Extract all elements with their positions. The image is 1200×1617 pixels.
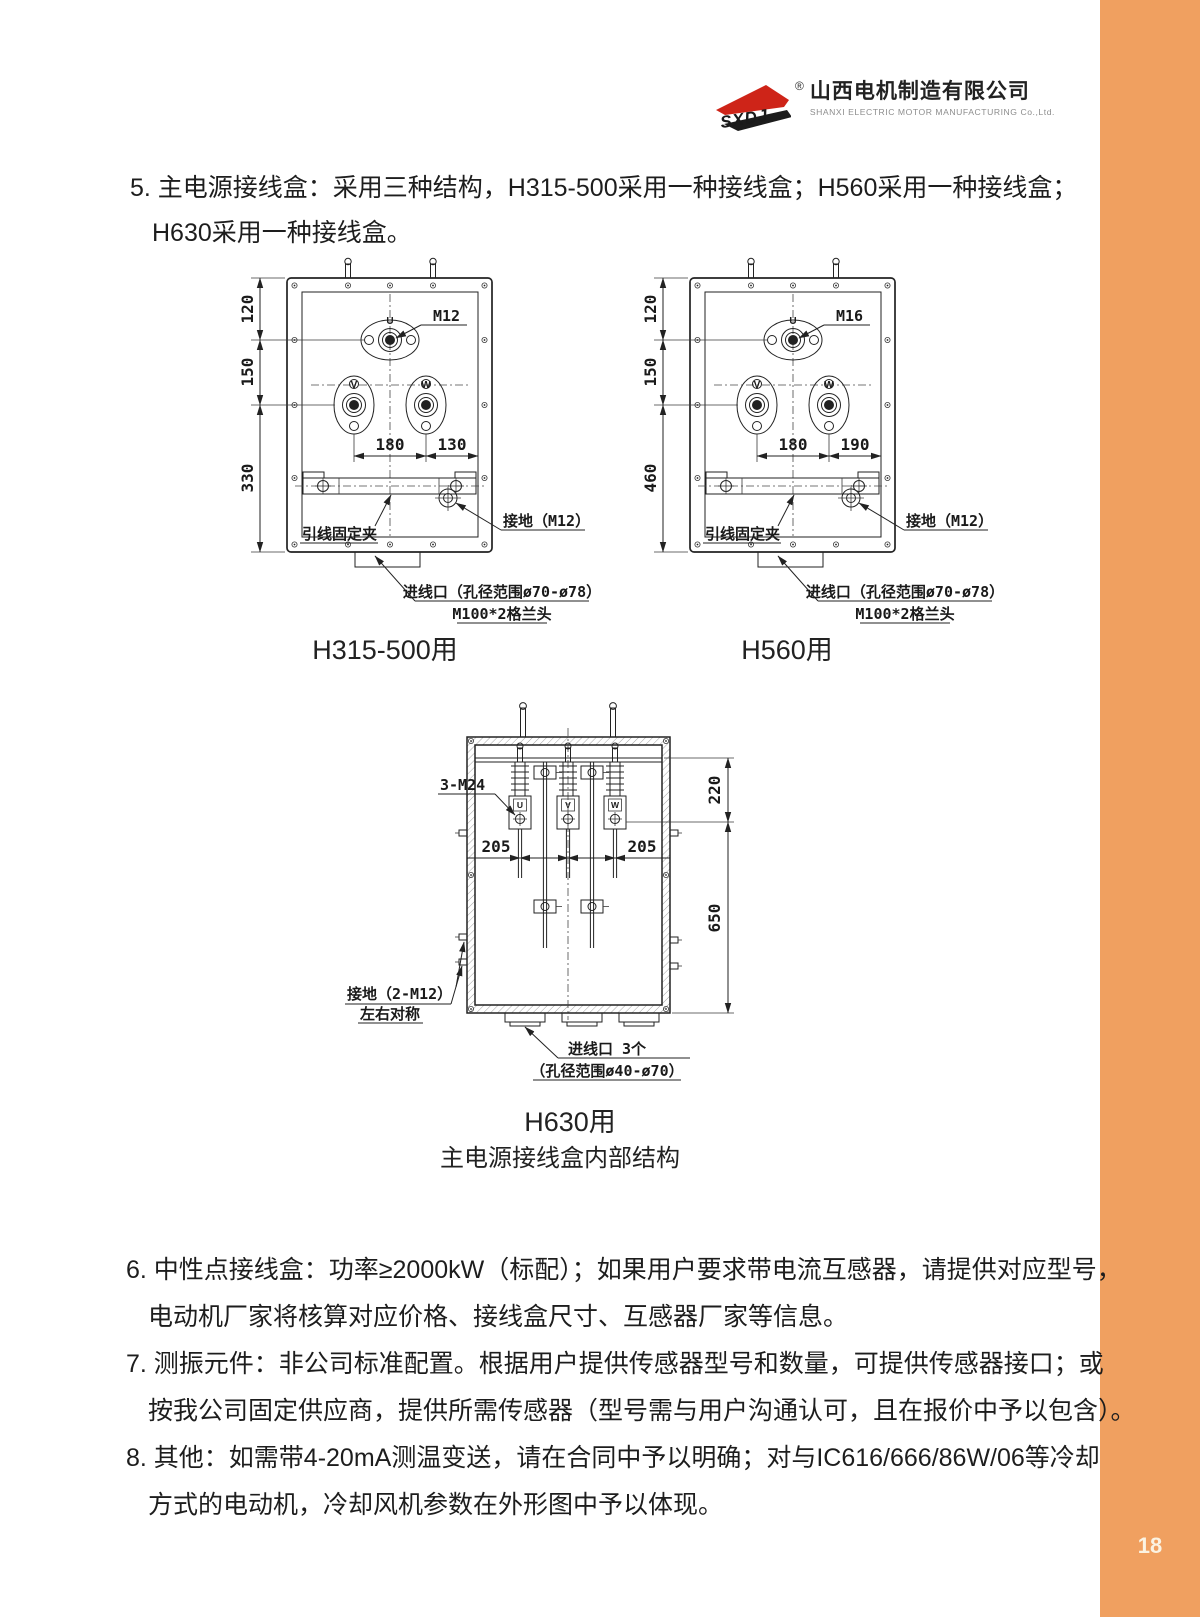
cable-entry-label: 进线口（孔径范围ø70-ø78） xyxy=(403,583,601,601)
caption-h560: H560用 xyxy=(687,628,887,667)
terminal-w-label: W xyxy=(824,380,834,391)
sxdj-logo-icon: SXDJ xyxy=(713,80,791,132)
dim-330: 330 xyxy=(238,464,257,493)
dim-120: 120 xyxy=(238,295,257,324)
note-6-line2: 电动机厂家将核算对应价格、接线盒尺寸、互感器厂家等信息。 xyxy=(148,1297,848,1333)
dim-180: 180 xyxy=(779,435,808,454)
lead-clamp-label: 引线固定夹 xyxy=(302,525,377,543)
terminal-v-label: V xyxy=(754,380,761,391)
terminal-u-label: U xyxy=(789,316,796,327)
bolt-size-label: M16 xyxy=(836,307,863,325)
diagram-h315-500: U V W M12 120 150 330 180 130 引线固定夹 接地（M… xyxy=(238,258,601,623)
junction-box-diagrams-h315-h560: U V W M12 120 150 330 180 130 引线固定夹 接地（M… xyxy=(225,250,1015,628)
cable-entry-label: 进线口（孔径范围ø70-ø78） xyxy=(806,583,1004,601)
note-7-line2: 按我公司固定供应商，提供所需传感器（型号需与用户沟通认可，且在报价中予以包含）。 xyxy=(148,1391,1136,1427)
dim-120: 120 xyxy=(641,295,660,324)
gland-label: M100*2格兰头 xyxy=(855,605,954,623)
dim-180: 180 xyxy=(376,435,405,454)
diagram-h630: U V W 220 650 205 205 3-M xyxy=(345,703,734,1080)
company-logo: SXDJ ® 山西电机制造有限公司 SHANXI ELECTRIC MOTOR … xyxy=(713,80,1055,132)
dim-460: 460 xyxy=(641,464,660,493)
note-8-line1: 8. 其他：如需带4-20mA测温变送，请在合同中予以明确；对与IC616/66… xyxy=(126,1438,1100,1474)
document-page: 18 SXDJ ® 山西电机制造有限公司 SHANXI ELECTRIC MOT… xyxy=(0,0,1200,1617)
terminal-w-label: W xyxy=(611,800,620,810)
company-name-en: SHANXI ELECTRIC MOTOR MANUFACTURING Co.,… xyxy=(810,107,1055,117)
terminal-v-label: V xyxy=(351,380,358,391)
ground-label-line1: 接地（2-M12） xyxy=(347,985,452,1003)
dim-150: 150 xyxy=(238,358,257,387)
dim-150: 150 xyxy=(641,358,660,387)
note-8-line2: 方式的电动机，冷却风机参数在外形图中予以体现。 xyxy=(148,1485,723,1521)
terminal-u-label: U xyxy=(517,800,523,810)
dim-130: 130 xyxy=(438,435,467,454)
note-7-line1: 7. 测振元件：非公司标准配置。根据用户提供传感器型号和数量，可提供传感器接口；… xyxy=(126,1344,1104,1380)
terminal-u-label: U xyxy=(386,316,393,327)
caption-h630: H630用 xyxy=(460,1100,680,1139)
gland-label: M100*2格兰头 xyxy=(452,605,551,623)
note-5-line2: H630采用一种接线盒。 xyxy=(152,213,412,249)
dim-205-left: 205 xyxy=(482,837,511,856)
figure-subtitle: 主电源接线盒内部结构 xyxy=(400,1138,720,1173)
dim-650: 650 xyxy=(705,904,724,933)
terminal-w-label: W xyxy=(421,380,431,391)
ground-label: 接地（M12） xyxy=(503,512,590,530)
page-edge-band xyxy=(1100,0,1200,1617)
ground-label-line2: 左右对称 xyxy=(359,1005,420,1023)
terminal-v-label: V xyxy=(565,800,571,810)
caption-h315-500: H315-500用 xyxy=(285,628,485,667)
note-5-line1: 5. 主电源接线盒：采用三种结构，H315-500采用一种接线盒；H560采用一… xyxy=(130,168,1077,204)
page-number: 18 xyxy=(1100,1533,1200,1559)
dim-220: 220 xyxy=(705,776,724,805)
lead-clamp-label: 引线固定夹 xyxy=(705,525,780,543)
note-6-line1: 6. 中性点接线盒：功率≥2000kW（标配）；如果用户要求带电流互感器，请提供… xyxy=(126,1250,1122,1286)
ground-label: 接地（M12） xyxy=(906,512,993,530)
registered-mark: ® xyxy=(795,80,804,92)
company-name-cn: 山西电机制造有限公司 xyxy=(810,80,1055,104)
diagram-h560: U V W M16 120 150 460 180 190 引线固定夹 接地（M… xyxy=(641,258,1004,623)
dim-205-right: 205 xyxy=(628,837,657,856)
cable-entry-label-line1: 进线口 3个 xyxy=(568,1040,647,1058)
junction-box-diagram-h630: U V W 220 650 205 205 3-M xyxy=(320,688,750,1088)
cable-entry-label-line2: （孔径范围ø40-ø70） xyxy=(530,1062,683,1080)
stud-count-label: 3-M24 xyxy=(440,776,485,794)
dim-190: 190 xyxy=(841,435,870,454)
bolt-size-label: M12 xyxy=(433,307,460,325)
